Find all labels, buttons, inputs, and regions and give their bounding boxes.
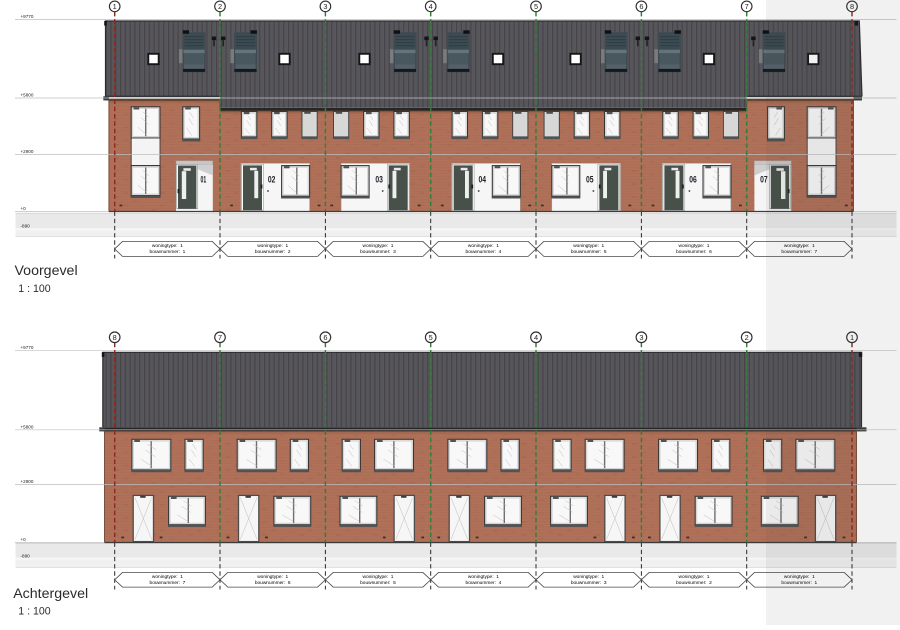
svg-text:+9770: +9770 bbox=[21, 345, 34, 350]
svg-text:8: 8 bbox=[113, 333, 117, 342]
svg-text:bouwnummer: 7: bouwnummer: 7 bbox=[150, 580, 186, 586]
svg-text:woningtype: 1: woningtype: 1 bbox=[363, 574, 394, 580]
svg-text:+5800: +5800 bbox=[21, 93, 34, 98]
svg-text:woningtype: 1: woningtype: 1 bbox=[468, 243, 499, 249]
svg-text:woningtype: 1: woningtype: 1 bbox=[152, 574, 183, 580]
svg-text:6: 6 bbox=[639, 2, 643, 11]
svg-text:+9770: +9770 bbox=[21, 14, 34, 19]
svg-text:7: 7 bbox=[745, 2, 749, 11]
svg-text:woningtype: 1: woningtype: 1 bbox=[573, 574, 604, 580]
svg-text:1 : 100: 1 : 100 bbox=[18, 605, 51, 617]
svg-text:woningtype: 1: woningtype: 1 bbox=[363, 243, 394, 249]
svg-text:woningtype: 1: woningtype: 1 bbox=[257, 243, 288, 249]
svg-text:6: 6 bbox=[323, 333, 327, 342]
svg-text:woningtype: 1: woningtype: 1 bbox=[573, 243, 604, 249]
svg-text:bouwnummer: 5: bouwnummer: 5 bbox=[571, 249, 607, 255]
svg-text:Voorgevel: Voorgevel bbox=[15, 263, 78, 279]
svg-text:4: 4 bbox=[534, 333, 538, 342]
svg-text:5: 5 bbox=[534, 2, 538, 11]
svg-text:+0: +0 bbox=[21, 537, 27, 542]
svg-text:02: 02 bbox=[268, 174, 276, 184]
svg-text:-890: -890 bbox=[21, 553, 31, 558]
svg-text:-890: -890 bbox=[21, 224, 31, 229]
svg-text:3: 3 bbox=[323, 2, 327, 11]
svg-text:2: 2 bbox=[218, 2, 222, 11]
svg-text:+2900: +2900 bbox=[21, 479, 34, 484]
svg-text:5: 5 bbox=[429, 333, 433, 342]
svg-text:Achtergevel: Achtergevel bbox=[13, 586, 88, 602]
svg-text:bouwnummer: 6: bouwnummer: 6 bbox=[255, 580, 291, 586]
svg-text:+0: +0 bbox=[21, 206, 27, 211]
svg-text:04: 04 bbox=[479, 174, 487, 184]
svg-text:bouwnummer: 4: bouwnummer: 4 bbox=[466, 249, 502, 255]
svg-text:+5800: +5800 bbox=[21, 424, 34, 429]
svg-text:1 : 100: 1 : 100 bbox=[18, 283, 51, 295]
svg-text:bouwnummer: 2: bouwnummer: 2 bbox=[255, 249, 291, 255]
svg-text:4: 4 bbox=[429, 2, 433, 11]
svg-text:woningtype: 1: woningtype: 1 bbox=[257, 574, 288, 580]
svg-text:bouwnummer: 4: bouwnummer: 4 bbox=[466, 580, 502, 586]
svg-text:2: 2 bbox=[745, 333, 749, 342]
svg-text:bouwnummer: 6: bouwnummer: 6 bbox=[676, 249, 712, 255]
svg-text:bouwnummer: 5: bouwnummer: 5 bbox=[360, 580, 396, 586]
svg-text:+2900: +2900 bbox=[21, 149, 34, 154]
svg-text:1: 1 bbox=[113, 2, 117, 11]
svg-text:bouwnummer: 3: bouwnummer: 3 bbox=[571, 580, 607, 586]
svg-text:bouwnummer: 1: bouwnummer: 1 bbox=[150, 249, 186, 255]
svg-text:bouwnummer: 2: bouwnummer: 2 bbox=[676, 580, 712, 586]
svg-text:7: 7 bbox=[218, 333, 222, 342]
svg-text:woningtype: 1: woningtype: 1 bbox=[468, 574, 499, 580]
svg-text:03: 03 bbox=[375, 174, 383, 184]
svg-text:woningtype: 1: woningtype: 1 bbox=[679, 243, 710, 249]
svg-text:woningtype: 1: woningtype: 1 bbox=[152, 243, 183, 249]
svg-text:bouwnummer: 3: bouwnummer: 3 bbox=[360, 249, 396, 255]
svg-text:05: 05 bbox=[586, 174, 594, 184]
svg-text:woningtype: 1: woningtype: 1 bbox=[679, 574, 710, 580]
svg-text:06: 06 bbox=[689, 174, 697, 184]
svg-text:3: 3 bbox=[639, 333, 643, 342]
svg-text:01: 01 bbox=[201, 174, 207, 185]
